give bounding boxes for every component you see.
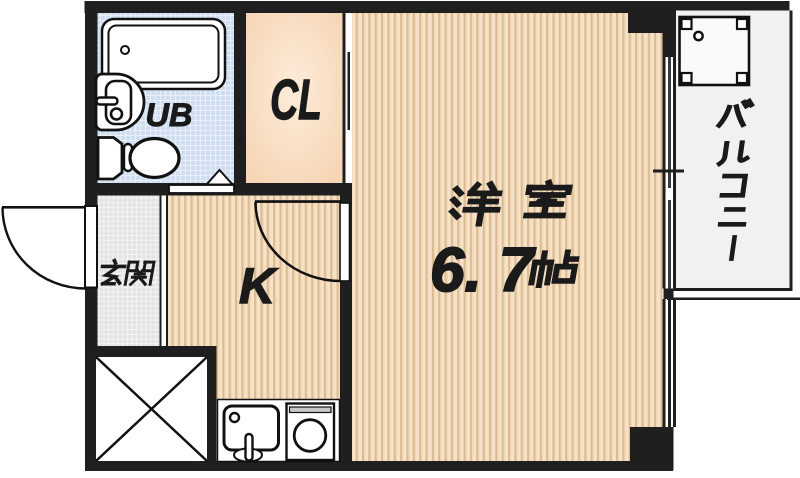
- svg-text:CL: CL: [270, 69, 322, 132]
- svg-text:6. 7: 6. 7: [430, 236, 536, 305]
- svg-text:UB: UB: [146, 97, 193, 133]
- svg-text:K: K: [239, 258, 279, 314]
